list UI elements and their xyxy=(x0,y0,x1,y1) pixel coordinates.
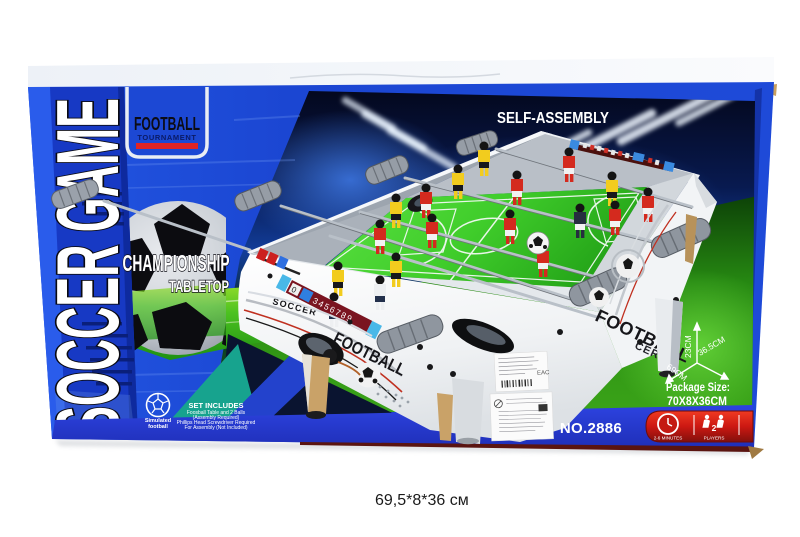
svg-text:SOCCER GAME: SOCCER GAME xyxy=(39,98,137,436)
svg-text:football: football xyxy=(148,424,168,430)
svg-text:NO.2886: NO.2886 xyxy=(560,420,622,437)
svg-text:TABLETOP: TABLETOP xyxy=(169,277,229,296)
svg-text:2: 2 xyxy=(712,423,717,433)
svg-text:23CM: 23CM xyxy=(683,335,693,358)
svg-text:SELF-ASSEMBLY: SELF-ASSEMBLY xyxy=(497,110,610,127)
svg-text:EAC: EAC xyxy=(537,370,550,377)
svg-text:FOOTBALL: FOOTBALL xyxy=(134,114,200,134)
svg-text:TOURNAMENT: TOURNAMENT xyxy=(137,133,196,142)
svg-text:70X8X36CM: 70X8X36CM xyxy=(667,394,727,408)
svg-text:PLAYERS: PLAYERS xyxy=(704,436,725,441)
svg-text:CHAMPIONSHIP: CHAMPIONSHIP xyxy=(123,250,230,276)
svg-text:Package Size:: Package Size: xyxy=(666,380,730,394)
svg-text:2-6 MINUTES: 2-6 MINUTES xyxy=(654,436,683,441)
svg-text:69,5*8*36 см: 69,5*8*36 см xyxy=(375,492,469,509)
svg-text:For Assembly (Not Included): For Assembly (Not Included) xyxy=(184,425,247,431)
svg-text:SET INCLUDES: SET INCLUDES xyxy=(188,401,243,410)
